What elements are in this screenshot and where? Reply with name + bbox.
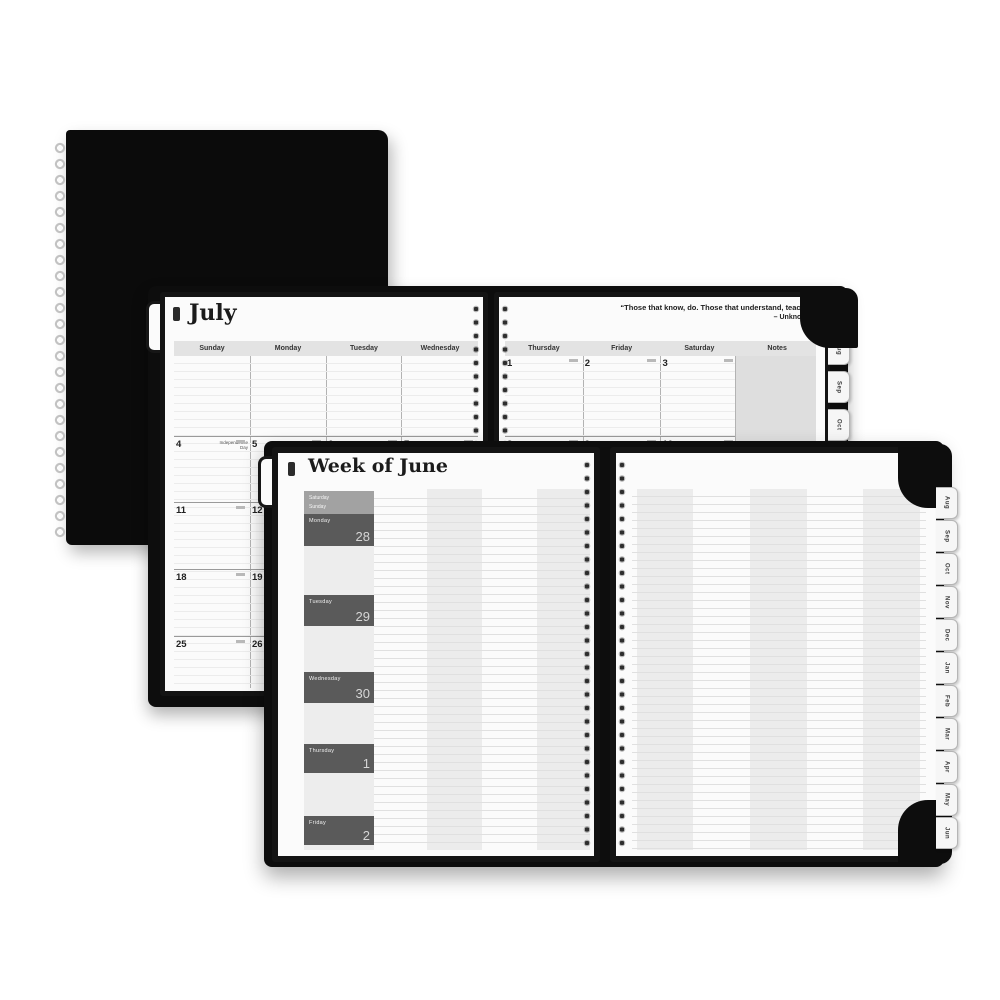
month-tab-aug: Aug [936,487,958,519]
tab-label: Apr [944,761,950,773]
day-label: Monday [309,518,330,524]
weekday-header-row: Sunday Monday Tuesday Wednesday [174,341,478,356]
calendar-cell: 11 [174,503,250,569]
date-number: 26 [252,639,263,650]
calendar-cell: 25 [174,637,250,694]
month-tab-may: May [936,784,958,816]
tab-label: Jun [944,827,950,839]
calendar-cell: 1 [505,356,583,436]
month-week-row [174,356,478,436]
weekday-header: Thursday [505,341,583,356]
date-number: 4 [176,439,181,450]
calendar-cell [250,356,326,436]
day-date: 30 [356,686,370,701]
tab-label: Sep [836,381,842,394]
holiday-note: Independence Day [218,440,248,450]
calendar-cell: 3 [661,356,739,436]
weekly-title: Week of June [308,455,448,477]
day-label-column: Saturday Sunday Monday 28 Tuesday 29 Wed… [304,491,374,850]
spiral-holes-icon [582,459,593,850]
week-index-mark-icon [288,462,295,476]
planner-product-photo: July Sunday Monday Tuesday Wednesday 4 I… [0,0,1000,1000]
weekday-header: Wednesday [402,341,478,356]
month-tab-feb: Feb [936,685,958,717]
date-number: 5 [252,439,257,450]
month-tab-sep: Sep [936,520,958,552]
day-label: Friday [309,820,326,826]
date-number: 3 [663,358,668,369]
month-tab-dec: Dec [936,619,958,651]
day-date: 28 [356,529,370,544]
weekday-header: Sunday [174,341,250,356]
tab-label: Oct [836,419,842,431]
date-number: 25 [176,639,187,650]
month-tab-oct: Oct [828,409,850,441]
tab-label: Aug [944,496,950,509]
spiral-coil-icon [44,140,76,538]
calendar-cell [174,356,250,436]
month-index-mark-icon [173,307,180,321]
day-date: 29 [356,609,370,624]
month-tab-sep: Sep [828,371,850,403]
quote-text: “Those that know, do. Those that underst… [561,303,811,312]
cover-corner-icon [800,288,858,348]
day-date: 2 [363,828,370,843]
day-date: 1 [363,756,370,771]
weekend-day-label: Sunday [309,504,326,510]
day-block-friday: Friday 2 [304,816,374,845]
spiral-holes-icon [617,459,628,850]
weekly-left-page: Week of June Saturday Sunday Monday 28 T… [272,447,600,862]
month-tab-mar: Mar [936,718,958,750]
day-block-thursday: Thursday 1 [304,744,374,773]
date-number: 19 [252,572,263,583]
calendar-cell: 18 [174,570,250,636]
calendar-cell [326,356,402,436]
tab-label: Dec [944,629,950,642]
calendar-cell: 2 [583,356,661,436]
weekday-header: Friday [583,341,661,356]
month-tab-nov: Nov [936,586,958,618]
date-number: 11 [176,505,186,516]
weekday-header: Monday [250,341,326,356]
day-label: Tuesday [309,599,332,605]
date-number: 18 [176,572,187,583]
weekday-header-row: Thursday Friday Saturday Notes [505,341,816,356]
tab-label: Jan [944,662,950,674]
day-block-wednesday: Wednesday 30 [304,672,374,703]
weekly-right-page [610,447,942,862]
day-label: Thursday [309,748,334,754]
calendar-cell: 4 Independence Day [174,437,250,502]
tab-label: Oct [944,563,950,575]
weekend-block: Saturday Sunday [304,491,374,514]
calendar-cell [402,356,478,436]
day-block-tuesday: Tuesday 29 [304,595,374,626]
tab-label: May [944,793,950,806]
ruled-lines [632,489,926,850]
tab-label: Mar [944,728,950,740]
date-number: 2 [585,358,590,369]
day-label: Wednesday [309,676,341,682]
month-tab-apr: Apr [936,751,958,783]
month-tab-oct: Oct [936,553,958,585]
quote-attribution: – Unknown [561,313,811,322]
month-tab-jun: Jun [936,817,958,849]
tab-label: Sep [944,530,950,543]
weekday-header: Saturday [661,341,739,356]
day-block-monday: Monday 28 [304,514,374,546]
weekend-day-label: Saturday [309,495,329,501]
tab-label: Nov [944,596,950,609]
monthly-title: July [189,300,237,326]
weekday-header: Notes [738,341,816,356]
month-tab-jan: Jan [936,652,958,684]
tab-label: Feb [944,695,950,707]
weekday-header: Tuesday [326,341,402,356]
